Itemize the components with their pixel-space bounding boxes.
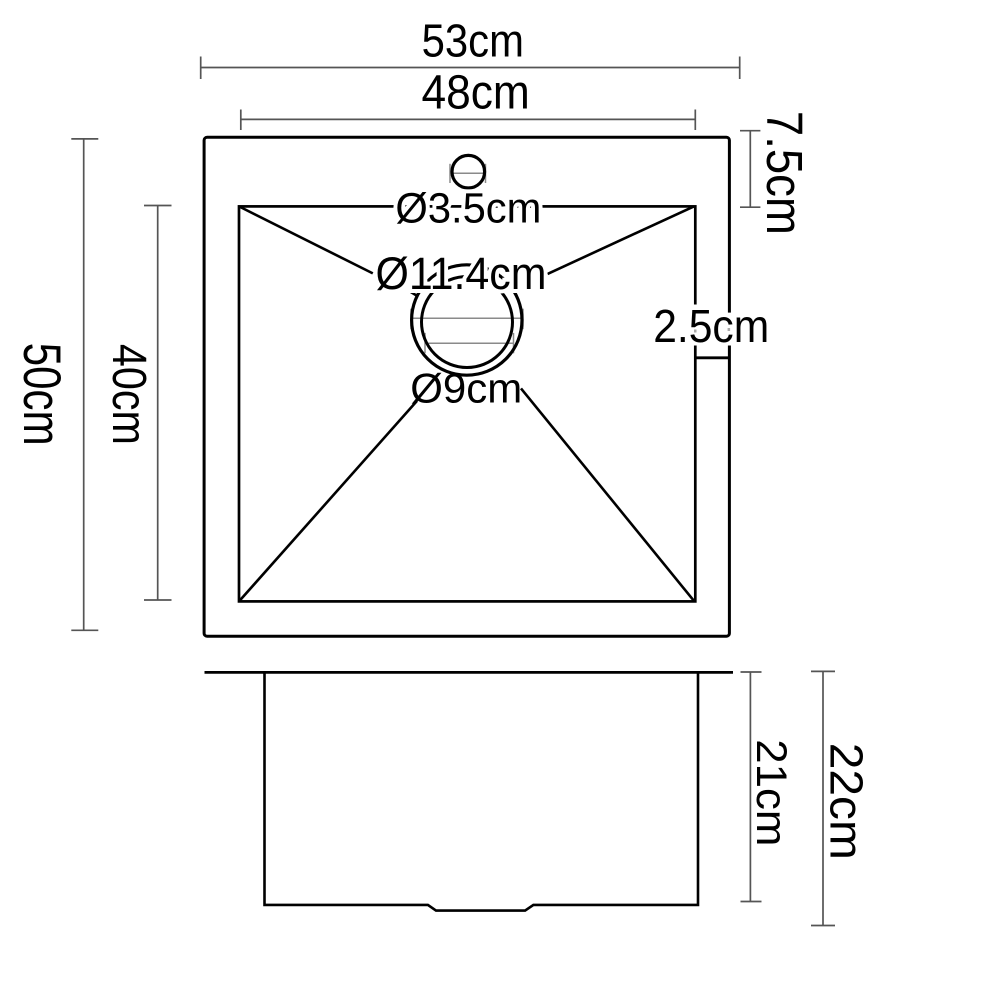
svg-text:Ø3.5cm: Ø3.5cm — [395, 186, 541, 233]
svg-text:21cm: 21cm — [748, 739, 795, 846]
svg-text:7.5cm: 7.5cm — [756, 111, 813, 235]
svg-text:40cm: 40cm — [102, 344, 156, 445]
svg-text:Ø11.4cm: Ø11.4cm — [376, 248, 547, 299]
svg-text:2.5cm: 2.5cm — [653, 300, 769, 352]
svg-text:48cm: 48cm — [421, 67, 529, 120]
svg-text:22cm: 22cm — [821, 743, 873, 860]
svg-text:53cm: 53cm — [422, 15, 524, 67]
svg-text:Ø9cm: Ø9cm — [410, 365, 522, 412]
svg-text:50cm: 50cm — [12, 343, 71, 446]
